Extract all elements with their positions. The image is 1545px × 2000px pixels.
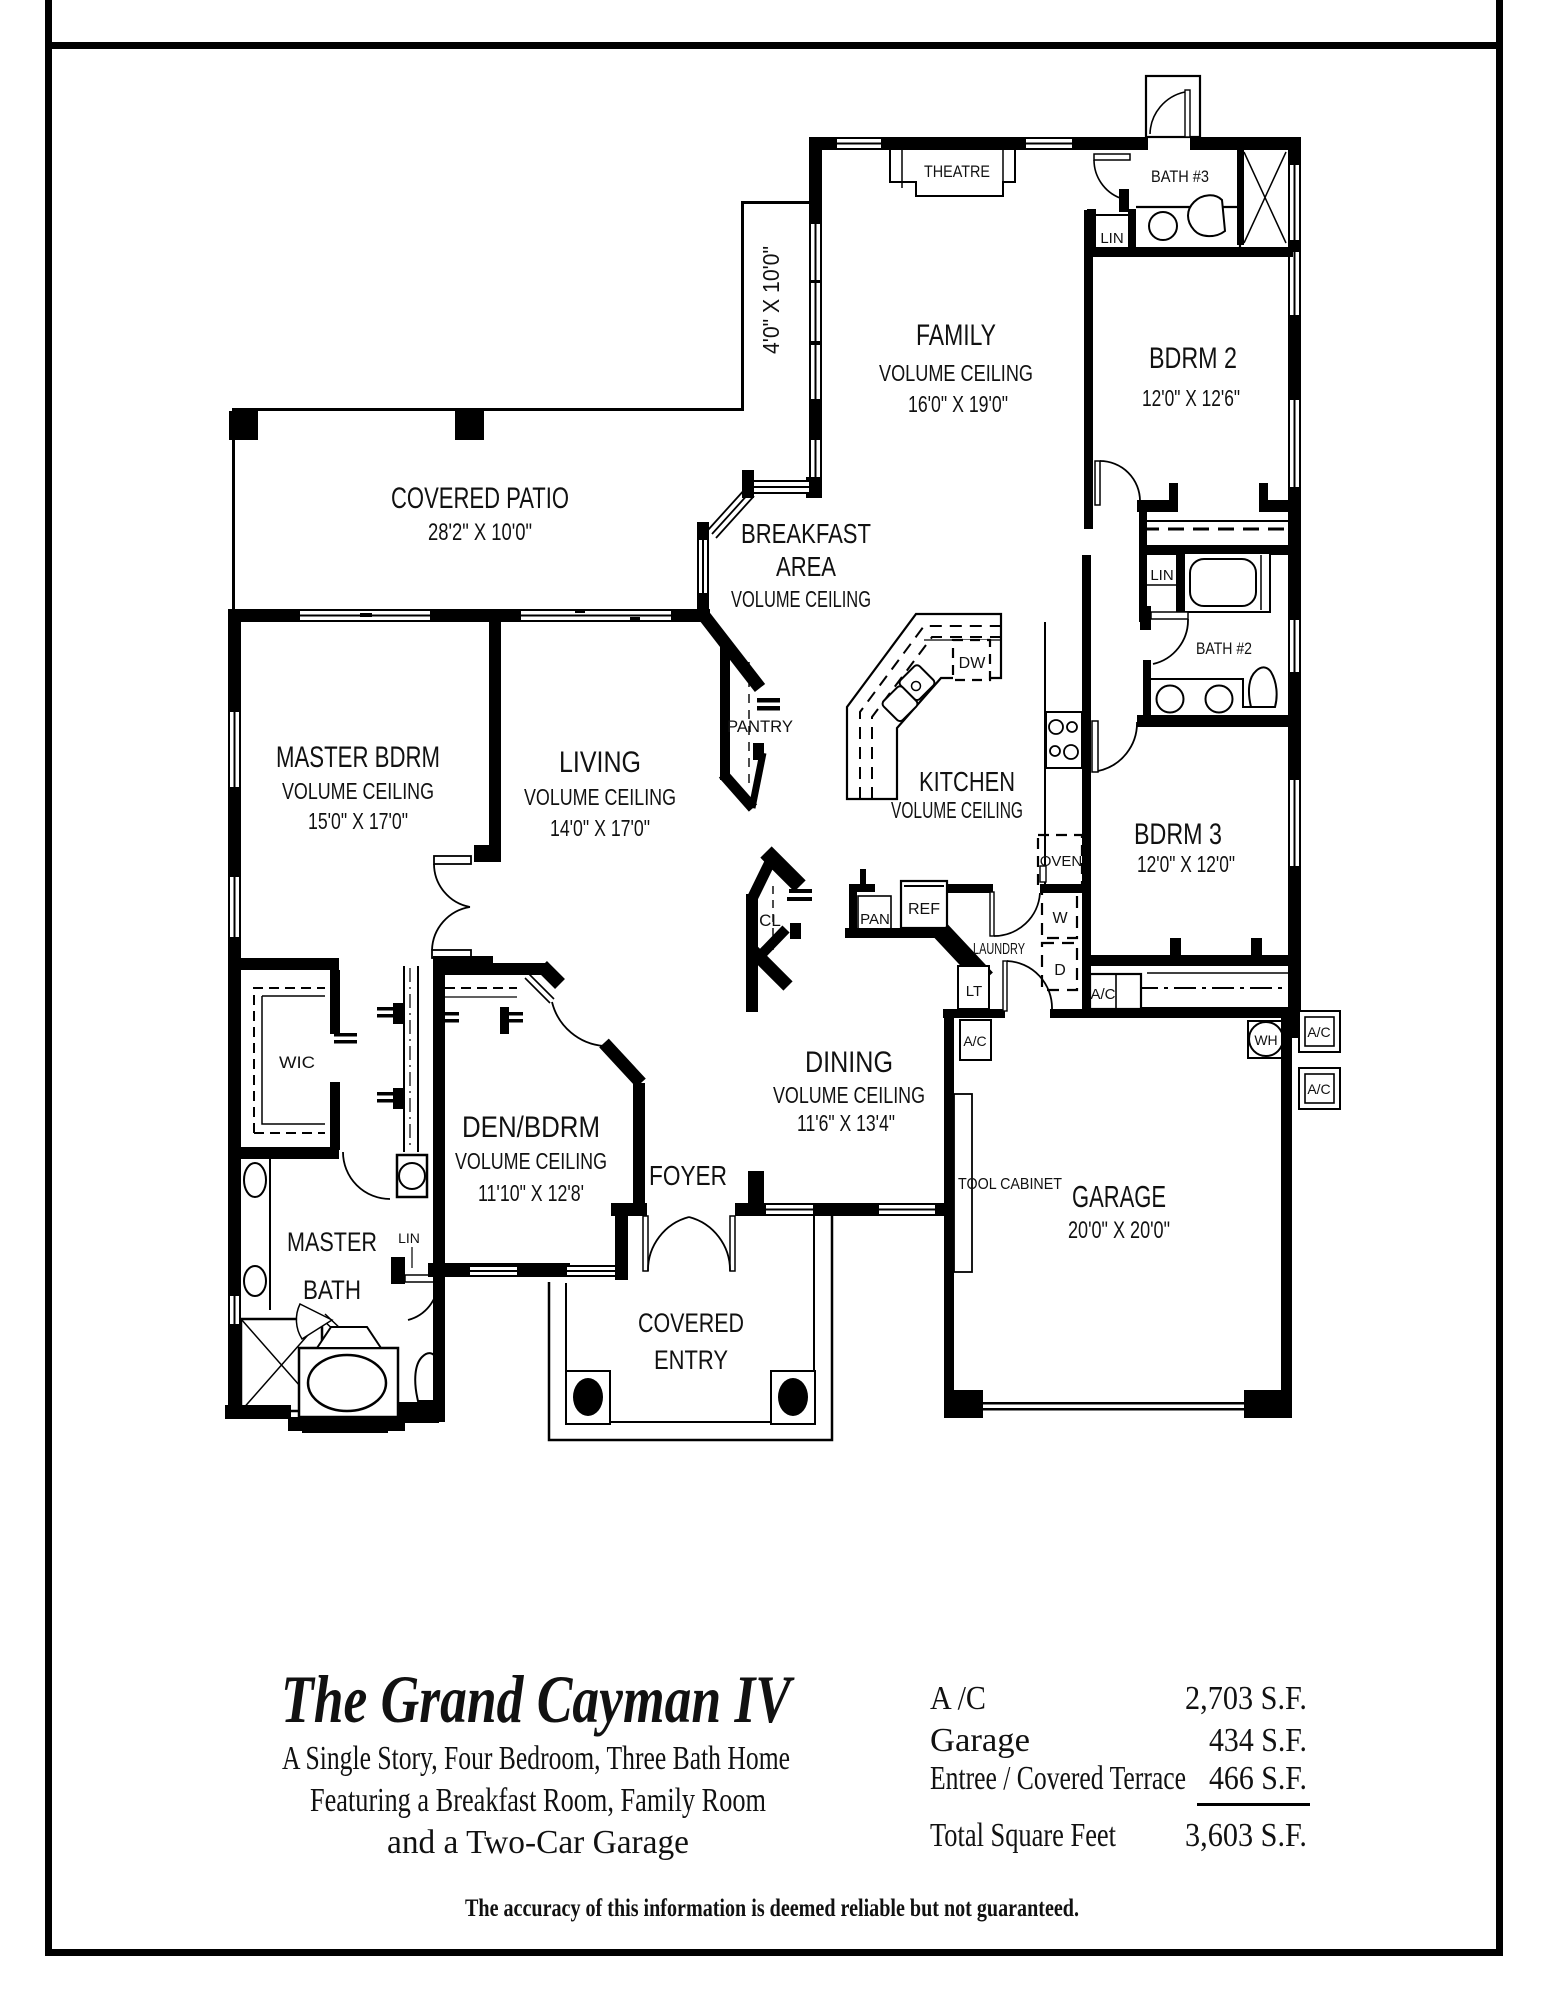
- svg-text:THEATRE: THEATRE: [924, 162, 990, 181]
- svg-text:VOLUME CEILING: VOLUME CEILING: [524, 784, 676, 810]
- svg-text:A/C: A/C: [1307, 1024, 1330, 1040]
- svg-text:VOLUME CEILING: VOLUME CEILING: [891, 797, 1023, 823]
- svg-text:VOLUME CEILING: VOLUME CEILING: [282, 778, 434, 804]
- svg-text:DW: DW: [959, 655, 987, 672]
- svg-text:The accuracy of this informati: The accuracy of this information is deem…: [465, 1895, 1079, 1922]
- svg-text:LIVING: LIVING: [559, 746, 641, 779]
- svg-text:FOYER: FOYER: [649, 1160, 727, 1191]
- svg-text:11'6" X 13'4": 11'6" X 13'4": [797, 1110, 895, 1136]
- svg-text:WIC: WIC: [279, 1053, 315, 1072]
- svg-text:PANTRY: PANTRY: [727, 717, 793, 736]
- svg-text:LIN: LIN: [1150, 567, 1173, 584]
- svg-text:BATH #3: BATH #3: [1151, 167, 1209, 186]
- svg-text:COVERED PATIO: COVERED PATIO: [391, 482, 569, 515]
- svg-text:BDRM 3: BDRM 3: [1134, 818, 1222, 851]
- svg-text:28'2" X 10'0": 28'2" X 10'0": [428, 519, 532, 546]
- svg-text:2,703 S.F.: 2,703 S.F.: [1185, 1680, 1307, 1717]
- svg-text:BATH #2: BATH #2: [1196, 639, 1252, 658]
- svg-text:12'0" X 12'0": 12'0" X 12'0": [1137, 851, 1235, 877]
- svg-text:FAMILY: FAMILY: [916, 319, 996, 352]
- svg-text:AREA: AREA: [776, 551, 836, 582]
- svg-text:Featuring a Breakfast Room, Fa: Featuring a Breakfast Room, Family Room: [310, 1782, 766, 1819]
- svg-text:The Grand Cayman IV: The Grand Cayman IV: [281, 1661, 795, 1737]
- svg-text:466 S.F.: 466 S.F.: [1209, 1760, 1307, 1797]
- svg-text:15'0" X 17'0": 15'0" X 17'0": [308, 808, 408, 834]
- svg-text:A Single Story, Four Bedroom,: A Single Story, Four Bedroom, Three Bath…: [282, 1740, 790, 1777]
- svg-text:PAN: PAN: [860, 911, 890, 928]
- svg-text:BREAKFAST: BREAKFAST: [741, 518, 871, 549]
- svg-text:W: W: [1052, 910, 1068, 927]
- svg-text:GARAGE: GARAGE: [1072, 1179, 1166, 1214]
- svg-text:VOLUME CEILING: VOLUME CEILING: [731, 586, 871, 612]
- svg-text:A/C: A/C: [1090, 986, 1115, 1003]
- svg-text:REF: REF: [908, 901, 940, 918]
- svg-text:VOLUME CEILING: VOLUME CEILING: [455, 1148, 607, 1174]
- svg-text:LT: LT: [966, 983, 982, 1000]
- svg-text:11'10" X 12'8': 11'10" X 12'8': [478, 1180, 584, 1206]
- svg-text:Entree / Covered Terrace: Entree / Covered Terrace: [930, 1760, 1186, 1797]
- svg-text:LIN: LIN: [398, 1230, 420, 1246]
- svg-text:and a Two-Car Garage: and a Two-Car Garage: [387, 1824, 689, 1861]
- svg-text:TOOL CABINET: TOOL CABINET: [958, 1176, 1062, 1193]
- svg-text:DEN/BDRM: DEN/BDRM: [462, 1111, 600, 1144]
- svg-text:LIN: LIN: [1100, 230, 1123, 247]
- svg-text:BATH: BATH: [303, 1275, 361, 1305]
- svg-text:LAUNDRY: LAUNDRY: [973, 941, 1025, 958]
- svg-text:COVERED: COVERED: [638, 1308, 744, 1338]
- svg-text:D: D: [1054, 962, 1066, 979]
- svg-text:12'0" X 12'6": 12'0" X 12'6": [1142, 385, 1240, 411]
- svg-text:Total Square Feet: Total Square Feet: [930, 1817, 1116, 1854]
- svg-text:MASTER: MASTER: [287, 1227, 377, 1257]
- svg-text:VOLUME CEILING: VOLUME CEILING: [879, 360, 1033, 386]
- svg-text:16'0" X 19'0": 16'0" X 19'0": [908, 391, 1008, 417]
- svg-text:20'0" X 20'0": 20'0" X 20'0": [1068, 1217, 1170, 1244]
- svg-text:3,603 S.F.: 3,603 S.F.: [1185, 1817, 1307, 1854]
- svg-text:KITCHEN: KITCHEN: [919, 766, 1015, 797]
- svg-text:4'0" X 10'0": 4'0" X 10'0": [758, 246, 784, 354]
- svg-text:DINING: DINING: [805, 1046, 893, 1079]
- svg-text:ENTRY: ENTRY: [654, 1345, 728, 1375]
- svg-text:MASTER BDRM: MASTER BDRM: [276, 741, 440, 774]
- svg-text:434 S.F.: 434 S.F.: [1209, 1722, 1307, 1759]
- svg-text:CL: CL: [759, 911, 781, 930]
- svg-text:VOLUME CEILING: VOLUME CEILING: [773, 1082, 925, 1108]
- svg-text:BDRM 2: BDRM 2: [1149, 342, 1237, 375]
- svg-text:A /C: A /C: [930, 1680, 986, 1717]
- svg-text:Garage: Garage: [930, 1722, 1030, 1759]
- svg-text:A/C: A/C: [963, 1033, 986, 1049]
- svg-text:OVEN: OVEN: [1040, 853, 1083, 870]
- svg-text:14'0" X 17'0": 14'0" X 17'0": [550, 815, 650, 841]
- svg-text:A/C: A/C: [1307, 1081, 1330, 1097]
- svg-text:WH: WH: [1254, 1032, 1277, 1048]
